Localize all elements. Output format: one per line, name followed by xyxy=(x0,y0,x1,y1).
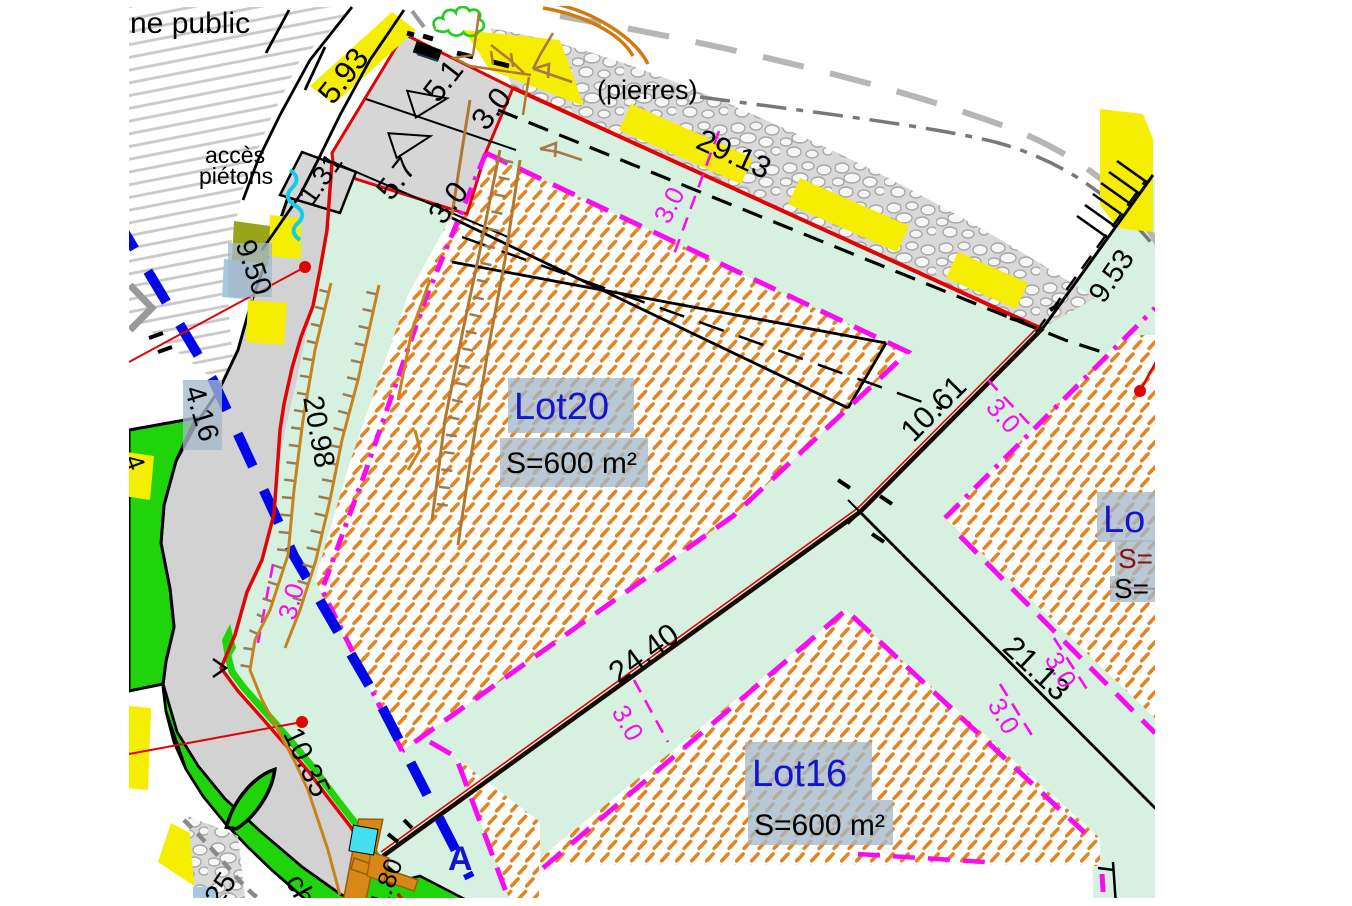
svg-text:Lo: Lo xyxy=(1103,499,1145,541)
svg-text:S=600 m²: S=600 m² xyxy=(506,447,637,480)
svg-text:S=: S= xyxy=(1114,573,1149,604)
svg-text:Lot20: Lot20 xyxy=(514,386,609,428)
svg-text:S=600 m²: S=600 m² xyxy=(754,809,885,842)
svg-text:ne public: ne public xyxy=(130,7,250,40)
svg-text:piétons: piétons xyxy=(199,163,273,189)
svg-text:A: A xyxy=(448,840,473,878)
svg-text:S=: S= xyxy=(1118,543,1153,574)
svg-text:Lot16: Lot16 xyxy=(752,753,847,795)
svg-text:(pierres): (pierres) xyxy=(597,75,698,105)
